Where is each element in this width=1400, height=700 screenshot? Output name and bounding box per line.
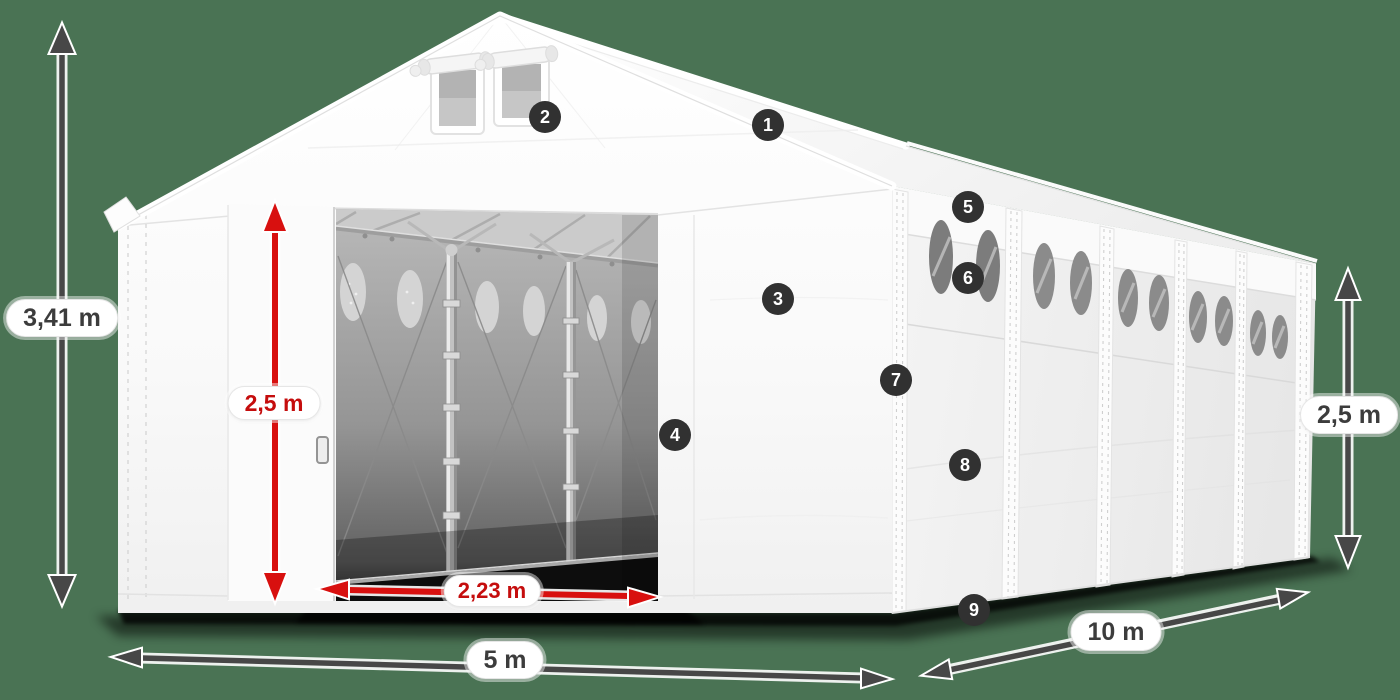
callout-badge-4[interactable]: 4 <box>659 419 691 451</box>
callout-badge-5[interactable]: 5 <box>952 191 984 223</box>
callout-badge-9[interactable]: 9 <box>958 594 990 626</box>
dimension-label-front-width: 5 m <box>466 641 543 679</box>
dimension-label-entrance-width: 2,23 m <box>444 575 541 607</box>
callout-badge-3[interactable]: 3 <box>762 283 794 315</box>
dimension-label-entrance-height: 2,5 m <box>228 386 321 420</box>
dimension-label-total-height: 3,41 m <box>6 299 118 337</box>
dimension-label-side-wall-height: 2,5 m <box>1300 396 1398 434</box>
tent-product-diagram: 3,41 m 2,5 m 2,23 m 5 m 10 m 2,5 m 1 2 3… <box>0 0 1400 700</box>
callout-badge-6[interactable]: 6 <box>952 262 984 294</box>
callout-badge-8[interactable]: 8 <box>949 449 981 481</box>
callout-badge-7[interactable]: 7 <box>880 364 912 396</box>
tent-illustration <box>0 0 1400 700</box>
tent-interior <box>336 209 658 601</box>
door-handle[interactable] <box>317 437 328 463</box>
callout-badge-1[interactable]: 1 <box>752 109 784 141</box>
callout-badge-2[interactable]: 2 <box>529 101 561 133</box>
dimension-label-side-length: 10 m <box>1071 613 1162 651</box>
